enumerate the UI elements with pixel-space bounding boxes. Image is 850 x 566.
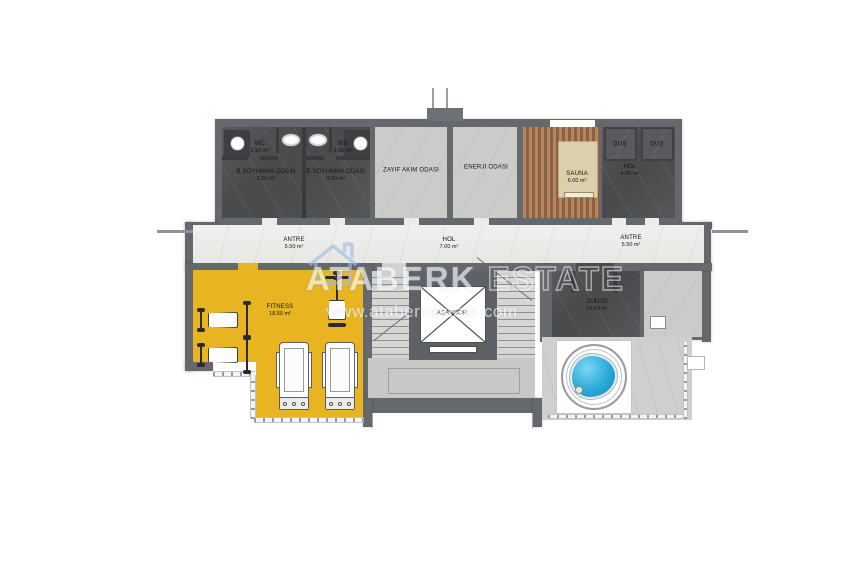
door-opening: [238, 263, 258, 271]
room-label-wc-right: WC 2.50 m²: [334, 139, 353, 154]
wheel: [338, 402, 342, 406]
toilet: [308, 133, 328, 147]
barbell-rack: [200, 311, 202, 329]
wheel: [347, 402, 351, 406]
room-label-hall-top: HOL 4.00 m²: [621, 162, 640, 177]
bench-press: [196, 338, 258, 372]
deck-edge: [548, 414, 684, 419]
elevator-sill: [429, 346, 477, 353]
sauna-step: [550, 120, 595, 127]
toilet: [281, 133, 301, 147]
sauna-bench: [564, 192, 594, 198]
room-label-energy: ENERJİ ODASI: [464, 163, 508, 171]
room-label-hall-center: HOL 7.00 m²: [440, 235, 459, 250]
room-label-wc-left: WC 2.50 m²: [251, 139, 270, 154]
treadmill-base: [326, 397, 354, 409]
pulldown-machine: [322, 272, 352, 330]
deck-edge: [250, 375, 256, 419]
wall-stub-right: [712, 230, 748, 233]
bench-seat: [208, 312, 238, 328]
wall: [372, 398, 533, 413]
partition-wall: [306, 156, 324, 160]
room-label-shower-left: DUŞ: [613, 140, 626, 148]
room-label-jacuzzi: JAKUZİ 10.50 m²: [586, 297, 608, 312]
machine-footbar: [328, 323, 346, 327]
door-opening: [382, 263, 406, 271]
room-label-shower-right: DUŞ: [650, 140, 663, 148]
door-opening: [262, 218, 277, 226]
wall-stub-left: [157, 230, 193, 233]
wall: [363, 398, 372, 427]
partition-wall: [329, 127, 332, 153]
sink-basin: [230, 136, 245, 151]
room-label-fitness: FITNESS 18.50 m²: [267, 302, 294, 317]
bench-press: [196, 303, 258, 337]
machine-cable: [336, 279, 338, 301]
wheel: [292, 402, 296, 406]
door-jamb: [613, 271, 617, 293]
wheel: [283, 402, 287, 406]
room-label-entry-left: ANTRE 5.50 m²: [283, 235, 304, 250]
door-opening: [330, 218, 345, 226]
wheel: [301, 402, 305, 406]
sink-basin: [353, 136, 368, 151]
treadmill-base: [280, 397, 308, 409]
jacuzzi-valve: [575, 386, 583, 394]
door-opening: [645, 218, 659, 226]
barbell: [246, 304, 248, 336]
partition-wall: [276, 127, 279, 153]
door-opening: [474, 218, 489, 226]
room-label-dressing-e: E.SOYUNMA ODASI 3.50 m²: [307, 167, 366, 182]
partition-wall: [260, 156, 278, 160]
lower-recess: [372, 413, 533, 428]
wall: [533, 398, 542, 427]
door-opening: [404, 218, 419, 226]
room-label-entry-right: ANTRE 5.50 m²: [620, 233, 641, 248]
room-label-sauna: SAUNA 6.00 m²: [566, 169, 588, 184]
partition-wall: [302, 127, 306, 218]
room-energy: [453, 127, 517, 218]
treadmill-belt: [330, 348, 350, 392]
treadmill: [279, 342, 309, 410]
door-opening: [576, 263, 614, 271]
treadmill-belt: [284, 348, 304, 392]
room-label-elevator: ASANSÖR: [437, 309, 468, 317]
deck-step: [687, 356, 705, 370]
wall: [540, 264, 552, 342]
door-jamb: [571, 271, 575, 293]
chimney-shaft: [427, 108, 463, 121]
barbell-rack: [200, 346, 202, 364]
bench-seat: [208, 347, 238, 363]
room-label-low-current: ZAYIF AKIM ODASI: [383, 166, 439, 174]
barbell: [246, 339, 248, 371]
door-opening: [612, 218, 626, 226]
door-leaf: [650, 316, 666, 329]
room-label-dressing-b: B.SOYUNMA ODASI 3.50 m²: [237, 167, 296, 182]
landing-outline: [388, 368, 520, 394]
machine-seat: [328, 300, 346, 320]
deck-edge: [254, 417, 364, 423]
floor-plan: WC 2.50 m² WC 2.50 m² B.SOYUNMA ODASI 3.…: [0, 0, 850, 566]
wheel: [329, 402, 333, 406]
wall: [185, 222, 193, 371]
treadmill: [325, 342, 355, 410]
deck-edge: [683, 342, 688, 419]
